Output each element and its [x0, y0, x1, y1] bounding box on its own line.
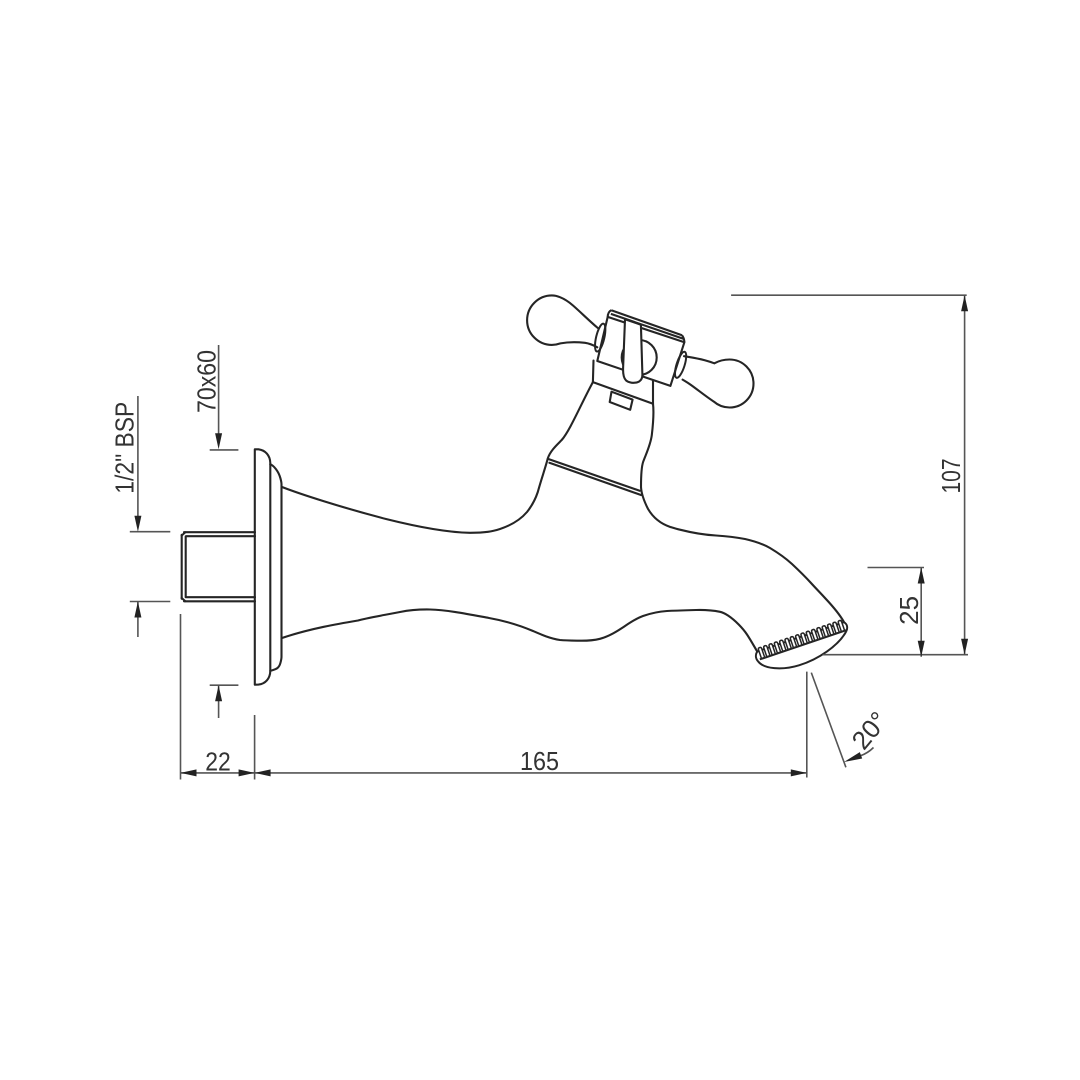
svg-text:25: 25 — [894, 596, 924, 625]
svg-text:165: 165 — [520, 746, 559, 776]
svg-text:22: 22 — [205, 747, 231, 777]
svg-text:1/2" BSP: 1/2" BSP — [110, 402, 140, 494]
svg-text:70x60: 70x60 — [192, 350, 222, 413]
svg-text:107: 107 — [936, 459, 966, 494]
